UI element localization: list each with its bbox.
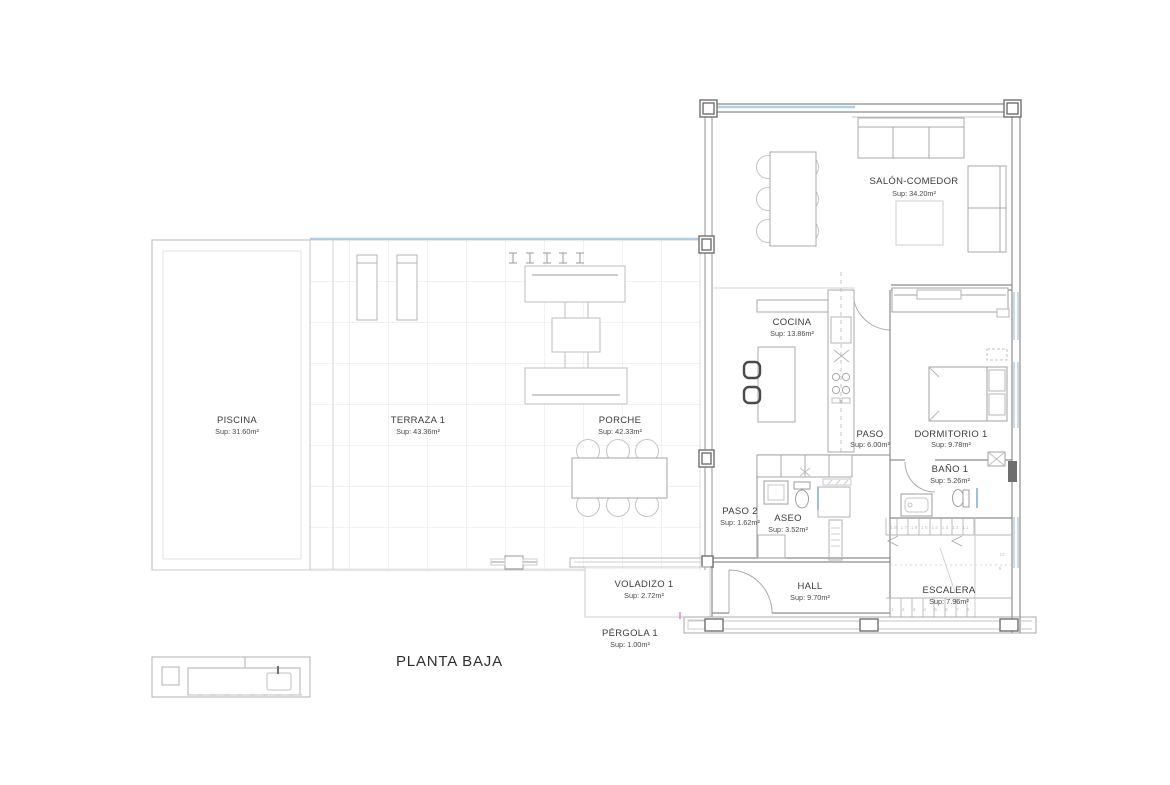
tv-unit — [968, 166, 1006, 252]
sofa — [858, 118, 964, 158]
room-label-salon-comedor: SALÓN-COMEDOR Sup: 34.20m² — [870, 176, 959, 198]
room-label-terraza: TERRAZA 1 Sup: 43.36m² — [391, 415, 445, 436]
svg-text:PISCINA: PISCINA — [217, 415, 257, 426]
porch-dining-set — [572, 440, 667, 517]
room-label-voladizo-1: VOLADIZO 1 Sup: 2.72m² — [615, 579, 674, 600]
interior-walls — [712, 285, 1012, 617]
dining-table — [770, 152, 816, 246]
aseo-shower — [818, 487, 850, 517]
svg-text:Sup: 7.96m²: Sup: 7.96m² — [929, 597, 969, 606]
svg-text:COCINA: COCINA — [773, 317, 812, 328]
room-label-bano-1: BAÑO 1 Sup: 5.26m² — [930, 464, 970, 485]
vent-box — [988, 452, 1017, 482]
svg-text:HALL: HALL — [798, 581, 823, 592]
pool — [152, 240, 310, 570]
bano-toilet — [953, 490, 970, 508]
svg-text:PASO: PASO — [857, 429, 884, 440]
detail-sink — [267, 673, 291, 690]
dormitorio-door-arc — [853, 292, 891, 330]
svg-text:Sup: 9.70m²: Sup: 9.70m² — [790, 593, 830, 602]
svg-text:DORMITORIO 1: DORMITORIO 1 — [914, 429, 987, 440]
plan-title: PLANTA BAJA — [396, 653, 503, 670]
stair-upper-numbers: 18 17 16 15 14 13 12 11 — [890, 525, 969, 530]
room-label-aseo: ASEO Sup: 3.52m² — [768, 513, 808, 534]
svg-text:Sup: 13.86m²: Sup: 13.86m² — [770, 329, 814, 338]
svg-text:PÉRGOLA 1: PÉRGOLA 1 — [602, 628, 658, 639]
stair-landing-number-9: 9 — [999, 566, 1002, 571]
svg-text:Sup: 5.26m²: Sup: 5.26m² — [930, 476, 970, 485]
aseo-toilet — [794, 482, 810, 508]
aseo-fixtures — [758, 481, 850, 560]
svg-text:Sup: 1.00m²: Sup: 1.00m² — [610, 640, 650, 649]
svg-text:ESCALERA: ESCALERA — [922, 585, 975, 596]
room-label-cocina: COCINA Sup: 13.86m² — [770, 317, 814, 338]
svg-text:Sup: 6.00m²: Sup: 6.00m² — [850, 440, 890, 449]
svg-text:BAÑO 1: BAÑO 1 — [932, 464, 969, 475]
floor-plan-canvas: 18 17 16 15 14 13 12 11 1 2 3 4 5 6 7 8 … — [0, 0, 1170, 785]
room-label-dormitorio-1: DORMITORIO 1 Sup: 9.78m² — [914, 429, 987, 449]
room-label-escalera: ESCALERA Sup: 7.96m² — [922, 585, 975, 606]
aseo-sink — [764, 481, 788, 504]
pergola-band — [684, 617, 1036, 633]
svg-text:Sup: 34.20m²: Sup: 34.20m² — [892, 189, 936, 198]
svg-text:Sup: 3.52m²: Sup: 3.52m² — [768, 525, 808, 534]
windows-right-wall — [1014, 292, 1018, 568]
bed — [929, 367, 1007, 421]
room-label-paso: PASO Sup: 6.00m² — [850, 429, 890, 449]
dormitorio-furniture — [892, 288, 1009, 421]
svg-text:SALÓN-COMEDOR: SALÓN-COMEDOR — [870, 176, 959, 187]
rug — [896, 201, 943, 245]
svg-text:Sup: 1.62m²: Sup: 1.62m² — [720, 518, 760, 527]
svg-text:PASO 2: PASO 2 — [722, 506, 757, 517]
room-label-hall: HALL Sup: 9.70m² — [790, 581, 830, 602]
ac-unit — [987, 349, 1007, 360]
entrance-door-arc — [729, 570, 772, 613]
floor-plan-drawing: 18 17 16 15 14 13 12 11 1 2 3 4 5 6 7 8 … — [0, 0, 1170, 785]
svg-text:TERRAZA 1: TERRAZA 1 — [391, 415, 445, 426]
room-label-porche: PORCHE Sup: 42.33m² — [598, 415, 642, 436]
room-label-paso-2: PASO 2 Sup: 1.62m² — [720, 506, 760, 527]
room-label-piscina: PISCINA Sup: 31.60m² — [215, 415, 259, 436]
bathtub — [901, 494, 932, 516]
structural-pillars — [699, 100, 1021, 567]
stair-lower-numbers: 1 2 3 4 5 6 7 8 — [891, 607, 973, 612]
room-label-pergola-1: PÉRGOLA 1 Sup: 1.00m² — [602, 628, 658, 649]
svg-text:VOLADIZO 1: VOLADIZO 1 — [615, 579, 674, 590]
svg-text:ASEO: ASEO — [774, 513, 802, 524]
stair-landing-number-10: 10 — [999, 552, 1005, 557]
svg-text:Sup: 31.60m²: Sup: 31.60m² — [215, 427, 259, 436]
svg-text:Sup: 43.36m²: Sup: 43.36m² — [396, 427, 440, 436]
porch-table — [572, 458, 667, 498]
svg-text:Sup: 9.78m²: Sup: 9.78m² — [931, 440, 971, 449]
salon-dining-set — [757, 152, 819, 246]
kitchen-island — [758, 347, 795, 422]
wardrobe — [892, 288, 1009, 317]
detail-drawing — [152, 657, 310, 697]
svg-text:Sup: 2.72m²: Sup: 2.72m² — [624, 591, 664, 600]
svg-text:Sup: 42.33m²: Sup: 42.33m² — [598, 427, 642, 436]
svg-text:PORCHE: PORCHE — [599, 415, 641, 426]
